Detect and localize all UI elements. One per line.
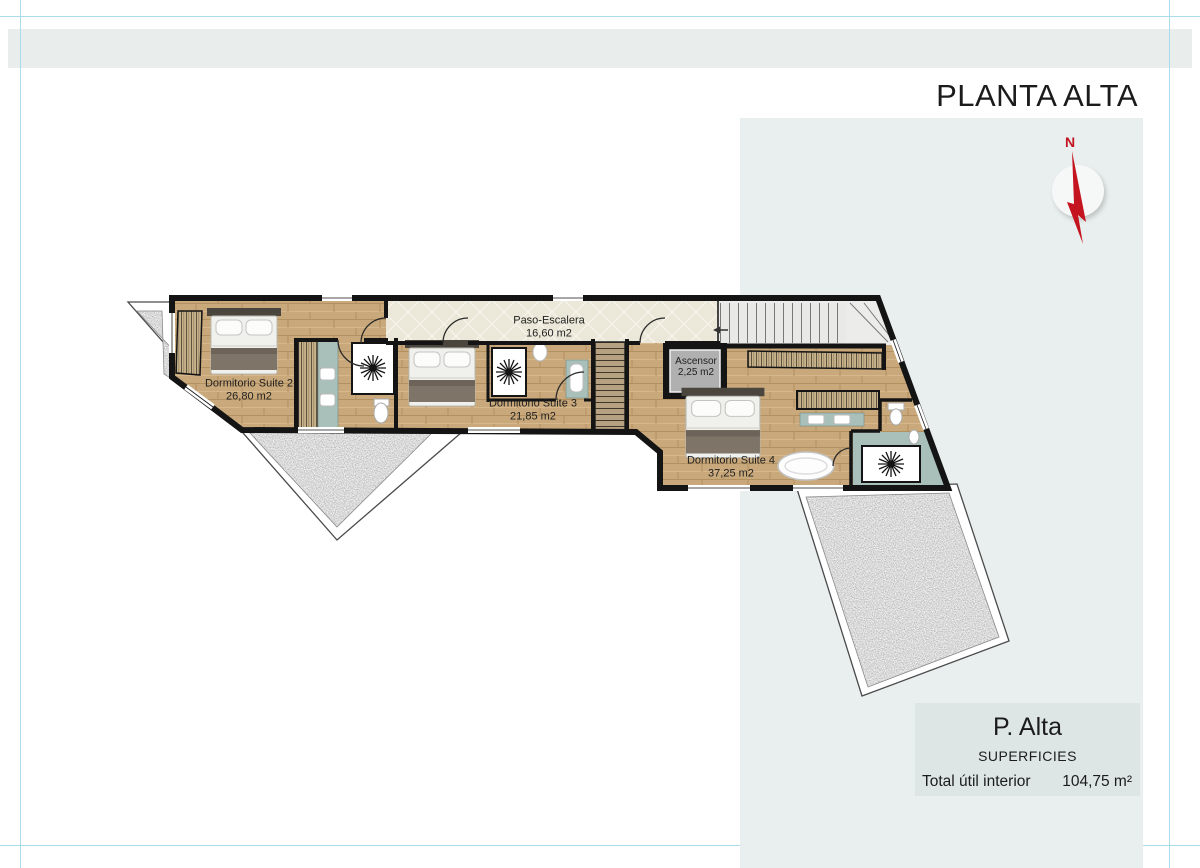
closet-suite2-bath	[298, 341, 318, 428]
sink-suite4	[909, 430, 919, 444]
stair-flight-down	[595, 342, 625, 430]
room-label-suite4: Dormitorio Suite 4 37,25 m2	[687, 455, 775, 480]
wardrobe-suite4	[797, 391, 879, 409]
vanity-suite4	[800, 413, 864, 426]
bed-suite4	[682, 388, 765, 458]
bed-suite3	[405, 340, 479, 406]
staircase	[718, 301, 895, 345]
floor-plan-page: { "header": { "title": "PLANTA ALTA" }, …	[0, 0, 1200, 868]
wardrobe-suite2	[176, 311, 202, 375]
bed-suite2	[207, 308, 281, 374]
north-arrow-icon	[1048, 140, 1110, 255]
wardrobe-below-stairs	[748, 351, 884, 369]
legend-total-label: Total útil interior	[922, 773, 1031, 791]
surfaces-legend: P. Alta SUPERFICIES Total útil interior …	[915, 703, 1140, 796]
compass: N	[1048, 140, 1110, 255]
legend-subtitle: SUPERFICIES	[915, 748, 1140, 764]
room-label-ascensor: Ascensor 2,25 m2	[675, 356, 717, 378]
compass-north-label: N	[1060, 134, 1080, 150]
bathtub	[778, 452, 834, 480]
page-title: PLANTA ALTA	[738, 78, 1138, 114]
room-label-suite2: Dormitorio Suite 2 26,80 m2	[205, 378, 293, 403]
room-label-suite3: Dormitorio Suite 3 21,85 m2	[489, 398, 577, 423]
legend-floor-name: P. Alta	[915, 713, 1140, 742]
room-label-paso-escalera: Paso-Escalera 16,60 m2	[513, 315, 585, 340]
legend-total-row: Total útil interior 104,75 m²	[915, 773, 1140, 791]
legend-total-value: 104,75 m²	[1062, 773, 1132, 791]
